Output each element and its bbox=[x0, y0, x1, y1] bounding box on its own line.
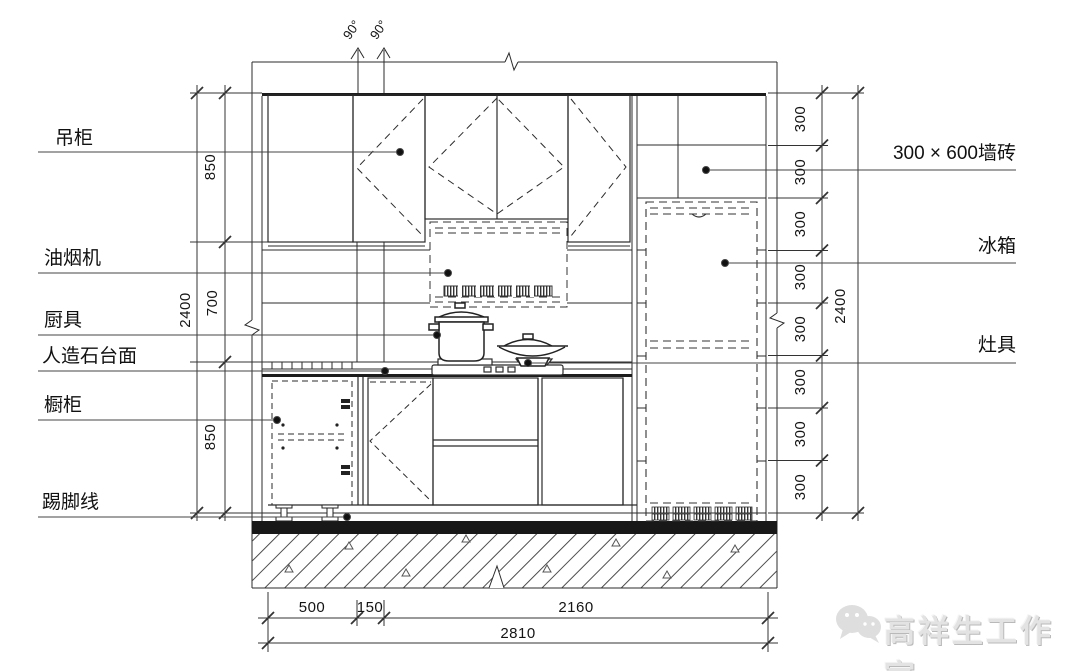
label-stone-counter: 人造石台面 bbox=[42, 346, 137, 368]
label-skirting: 踢脚线 bbox=[42, 492, 99, 514]
base-cabinets bbox=[268, 377, 637, 521]
dim-right-300-6: 300 bbox=[791, 352, 811, 412]
wok bbox=[497, 334, 568, 366]
right-wall-tiles bbox=[637, 96, 766, 461]
label-cookware: 厨具 bbox=[44, 310, 82, 332]
dim-bottom-500: 500 bbox=[282, 598, 342, 618]
dim-bottom-2160: 2160 bbox=[546, 598, 606, 618]
label-range-hood: 油烟机 bbox=[44, 248, 101, 270]
dim-left-850-bottom: 850 bbox=[201, 407, 221, 467]
label-refrigerator: 冰箱 bbox=[978, 236, 1016, 258]
label-wall-cabinet: 吊柜 bbox=[55, 128, 93, 150]
dim-left-700: 700 bbox=[203, 273, 223, 333]
range-hood bbox=[430, 222, 567, 307]
dim-right-300-4: 300 bbox=[791, 247, 811, 307]
dim-left-total-2400: 2400 bbox=[176, 280, 196, 340]
wall-cabinets bbox=[268, 95, 630, 246]
dim-right-300-3: 300 bbox=[791, 194, 811, 254]
dim-right-300-2: 300 bbox=[791, 142, 811, 202]
corner-angle-leaders bbox=[351, 48, 390, 93]
dim-right-total-2400: 2400 bbox=[831, 276, 851, 336]
dim-bottom-150: 150 bbox=[340, 598, 400, 618]
label-stove: 灶具 bbox=[978, 335, 1016, 357]
dim-right-300-5: 300 bbox=[791, 299, 811, 359]
dim-bottom-total-2810: 2810 bbox=[488, 624, 548, 644]
elevation-linework bbox=[0, 0, 1080, 671]
kitchen-elevation-drawing: 吊柜 油烟机 厨具 人造石台面 橱柜 踢脚线 300 × 600墙砖 冰箱 灶具… bbox=[0, 0, 1080, 671]
dim-right-300-8: 300 bbox=[791, 457, 811, 517]
label-wall-tile: 300 × 600墙砖 bbox=[893, 143, 1016, 165]
refrigerator bbox=[646, 202, 757, 521]
label-base-cabinet: 橱柜 bbox=[44, 395, 82, 417]
dim-right-300-7: 300 bbox=[791, 404, 811, 464]
dim-right-300-1: 300 bbox=[791, 89, 811, 149]
wechat-icon bbox=[836, 605, 881, 643]
watermark-studio-name: 高祥生工作室 bbox=[884, 606, 1080, 671]
dim-left-850-top: 850 bbox=[201, 137, 221, 197]
